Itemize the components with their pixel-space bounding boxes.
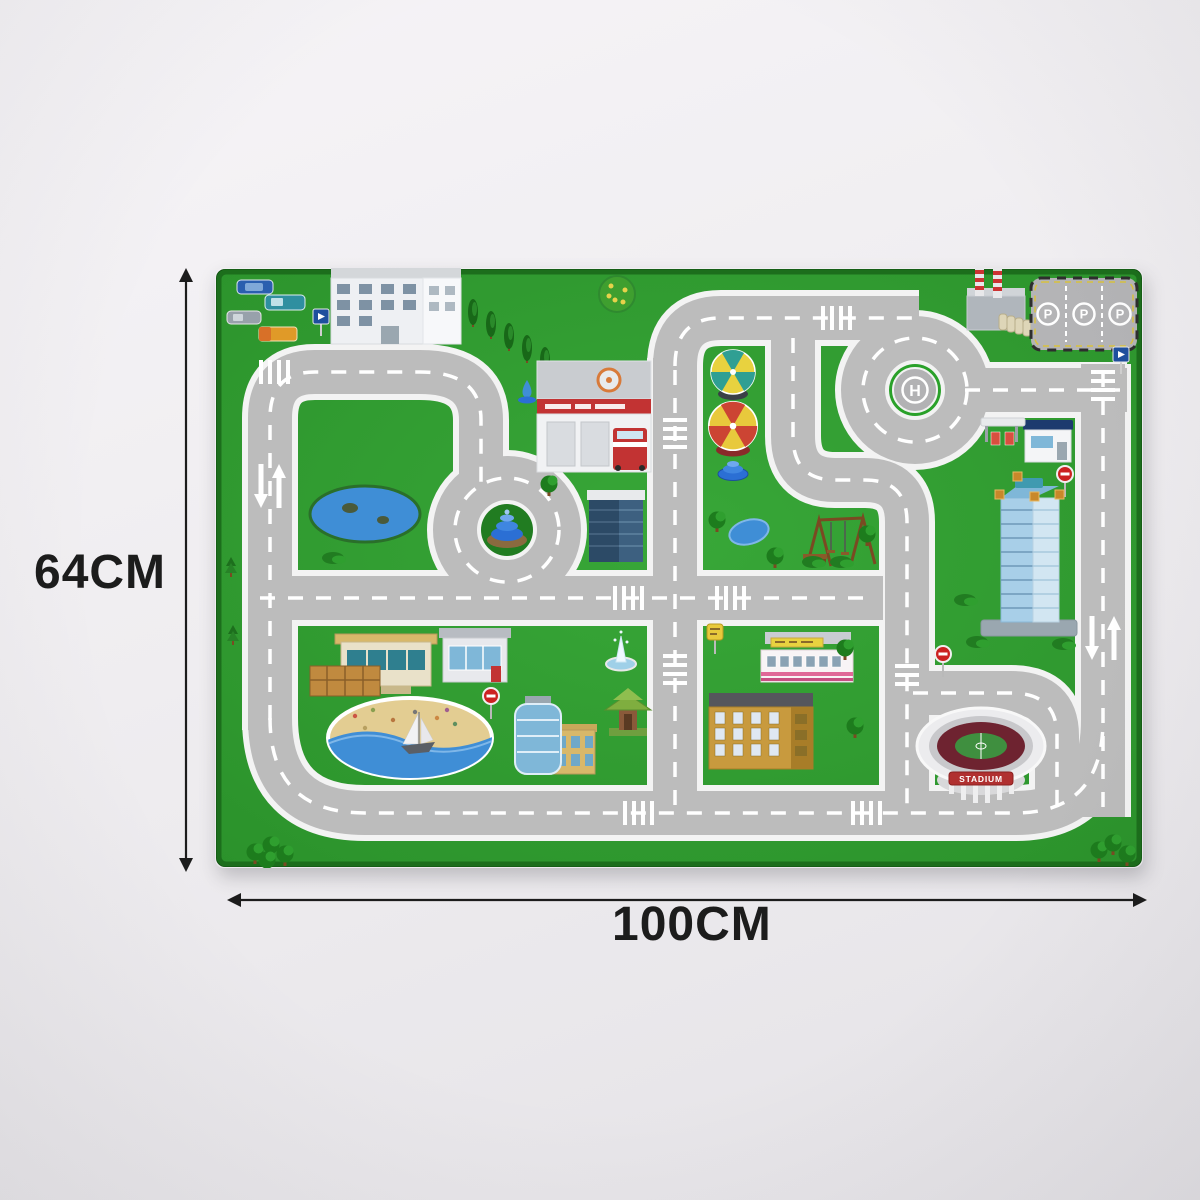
showroom [439, 628, 511, 682]
helipad-letter: H [909, 383, 921, 400]
pink-store [761, 632, 853, 682]
height-dimension-arrow [170, 266, 202, 874]
width-dimension-label: 100CM [612, 901, 772, 949]
flowering-tree [599, 276, 635, 312]
play-mat: H [215, 268, 1143, 868]
parking-letter: P [1080, 307, 1089, 322]
product-photo: H [0, 0, 1200, 1200]
parking-letter: P [1044, 307, 1053, 322]
apartment-building [331, 268, 461, 344]
yellow-apartment [709, 693, 813, 769]
play-mat-graphic: H [215, 268, 1143, 868]
fire-truck [613, 428, 647, 471]
height-dimension-label: 64CM [34, 549, 166, 597]
helipad: H [889, 364, 941, 416]
parking-letter: P [1116, 307, 1125, 322]
fire-station [537, 361, 651, 472]
office-tower [587, 490, 645, 562]
roundabout-fountain [481, 504, 533, 556]
stadium-banner-label: STADIUM [959, 774, 1003, 784]
